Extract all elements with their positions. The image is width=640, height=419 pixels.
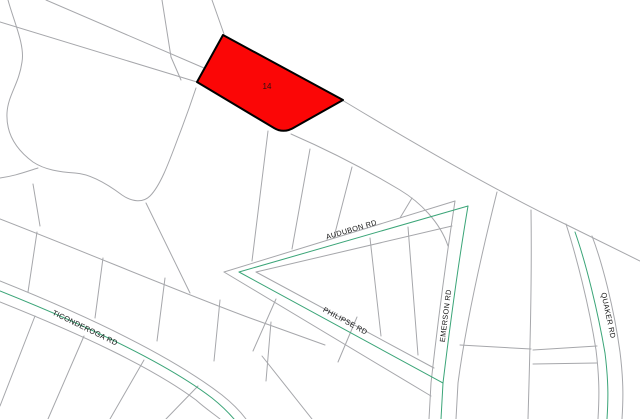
road-label-quaker-rd: QUAKER RD (599, 292, 618, 339)
parcel-boundary-line (528, 210, 531, 419)
ticonderoga-rd-centerline (0, 291, 234, 419)
parcel-boundary-line (212, 0, 224, 34)
parcel-boundary-line (370, 238, 381, 336)
parcel-boundary-line (533, 363, 597, 364)
parcel-boundary-line (533, 346, 597, 350)
parcel-boundary-line (33, 184, 40, 226)
parcel-boundary-line (110, 360, 144, 419)
parcel-boundary-line (0, 219, 325, 345)
parcel-boundary-line (157, 278, 165, 341)
parcel-map: 14 AUDUBON RDPHILIPSE RDEMERSON RDTICOND… (0, 0, 640, 419)
highlighted-parcel-label: 14 (263, 82, 272, 91)
parcel-boundary-line (252, 131, 268, 261)
parcel-boundary-line (292, 149, 310, 249)
parcel-boundary-line (266, 322, 271, 381)
parcel-boundary-line (0, 281, 246, 419)
parcel-boundary-line (456, 192, 497, 419)
audubon-rd-centerline (239, 206, 468, 272)
parcel-boundary-line (171, 57, 181, 80)
parcel-boundary-line (262, 356, 312, 419)
parcel-boundary-line (162, 0, 171, 57)
parcel-boundary-line (95, 258, 103, 318)
parcel-boundaries-layer (0, 0, 640, 419)
parcel-boundary-line (48, 336, 84, 419)
parcel-boundary-line (342, 100, 640, 261)
parcel-boundary-line (7, 0, 196, 201)
parcel-boundary-line (460, 345, 531, 349)
road-labels-layer: AUDUBON RDPHILIPSE RDEMERSON RDTICONDERO… (51, 218, 618, 348)
parcel-boundary-line (253, 299, 276, 351)
parcel-boundary-line (0, 168, 38, 178)
parcel-boundary-line (224, 272, 431, 396)
parcel-boundary-line (214, 300, 220, 361)
parcel-boundary-line (28, 232, 37, 292)
parcel-boundary-line (291, 134, 448, 246)
parcel-map-svg: 14 AUDUBON RDPHILIPSE RDEMERSON RDTICOND… (0, 0, 640, 419)
road-label-emerson-rd: EMERSON RD (438, 289, 453, 343)
parcel-boundary-line (408, 227, 418, 355)
road-centerlines-layer (0, 206, 608, 419)
parcel-boundary-line (0, 316, 35, 406)
highlighted-parcel-layer: 14 (197, 35, 343, 131)
parcel-boundary-line (46, 0, 204, 68)
parcel-boundary-line (166, 386, 198, 419)
parcel-boundary-line (0, 302, 220, 419)
parcel-boundary-line (566, 224, 599, 419)
